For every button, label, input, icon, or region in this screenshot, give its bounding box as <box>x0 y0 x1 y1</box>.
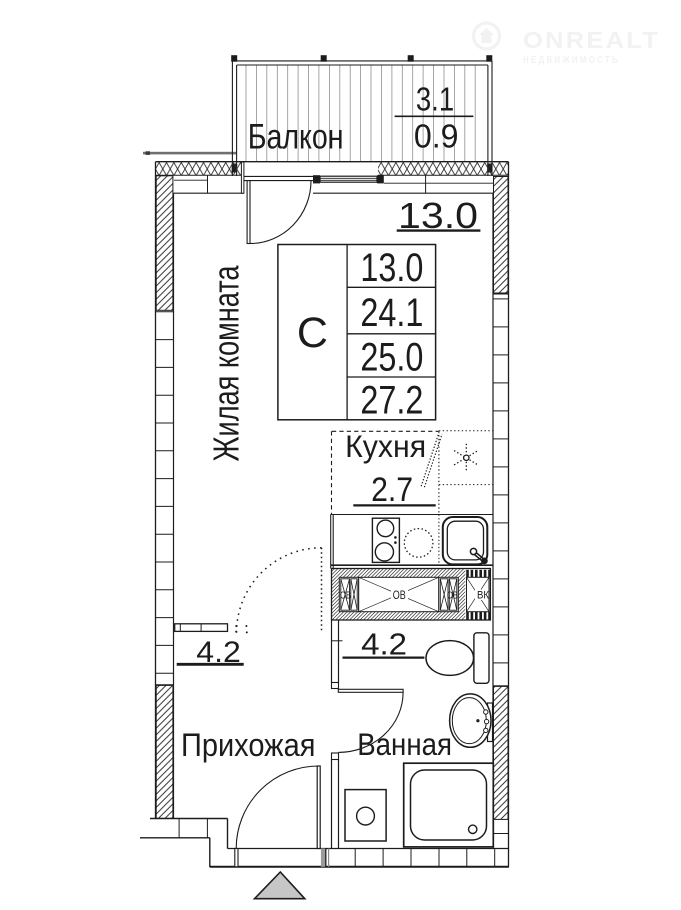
svg-text:ОВ: ОВ <box>447 590 458 602</box>
svg-text:Ванная: Ванная <box>357 726 452 762</box>
svg-text:27.2: 27.2 <box>360 379 423 423</box>
svg-text:ОВ: ОВ <box>340 590 351 602</box>
svg-text:ONREALT: ONREALT <box>523 27 660 53</box>
svg-text:24.1: 24.1 <box>360 291 423 335</box>
svg-text:2.7: 2.7 <box>371 471 413 509</box>
svg-text:13.0: 13.0 <box>360 246 423 290</box>
svg-text:Кухня: Кухня <box>345 428 426 464</box>
svg-text:ВК: ВК <box>477 590 490 602</box>
svg-text:4.2: 4.2 <box>361 626 407 661</box>
svg-text:С: С <box>297 309 328 357</box>
svg-text:Прихожая: Прихожая <box>181 727 315 763</box>
svg-text:Жилая комната: Жилая комната <box>206 265 247 462</box>
svg-text:Балкон: Балкон <box>248 118 344 157</box>
svg-text:ОВ: ОВ <box>393 588 406 602</box>
svg-text:25.0: 25.0 <box>360 336 423 380</box>
svg-text:0.9: 0.9 <box>414 118 459 155</box>
svg-text:НЕДВИЖИМОСТЬ: НЕДВИЖИМОСТЬ <box>523 54 620 66</box>
svg-text:3.1: 3.1 <box>416 80 454 117</box>
